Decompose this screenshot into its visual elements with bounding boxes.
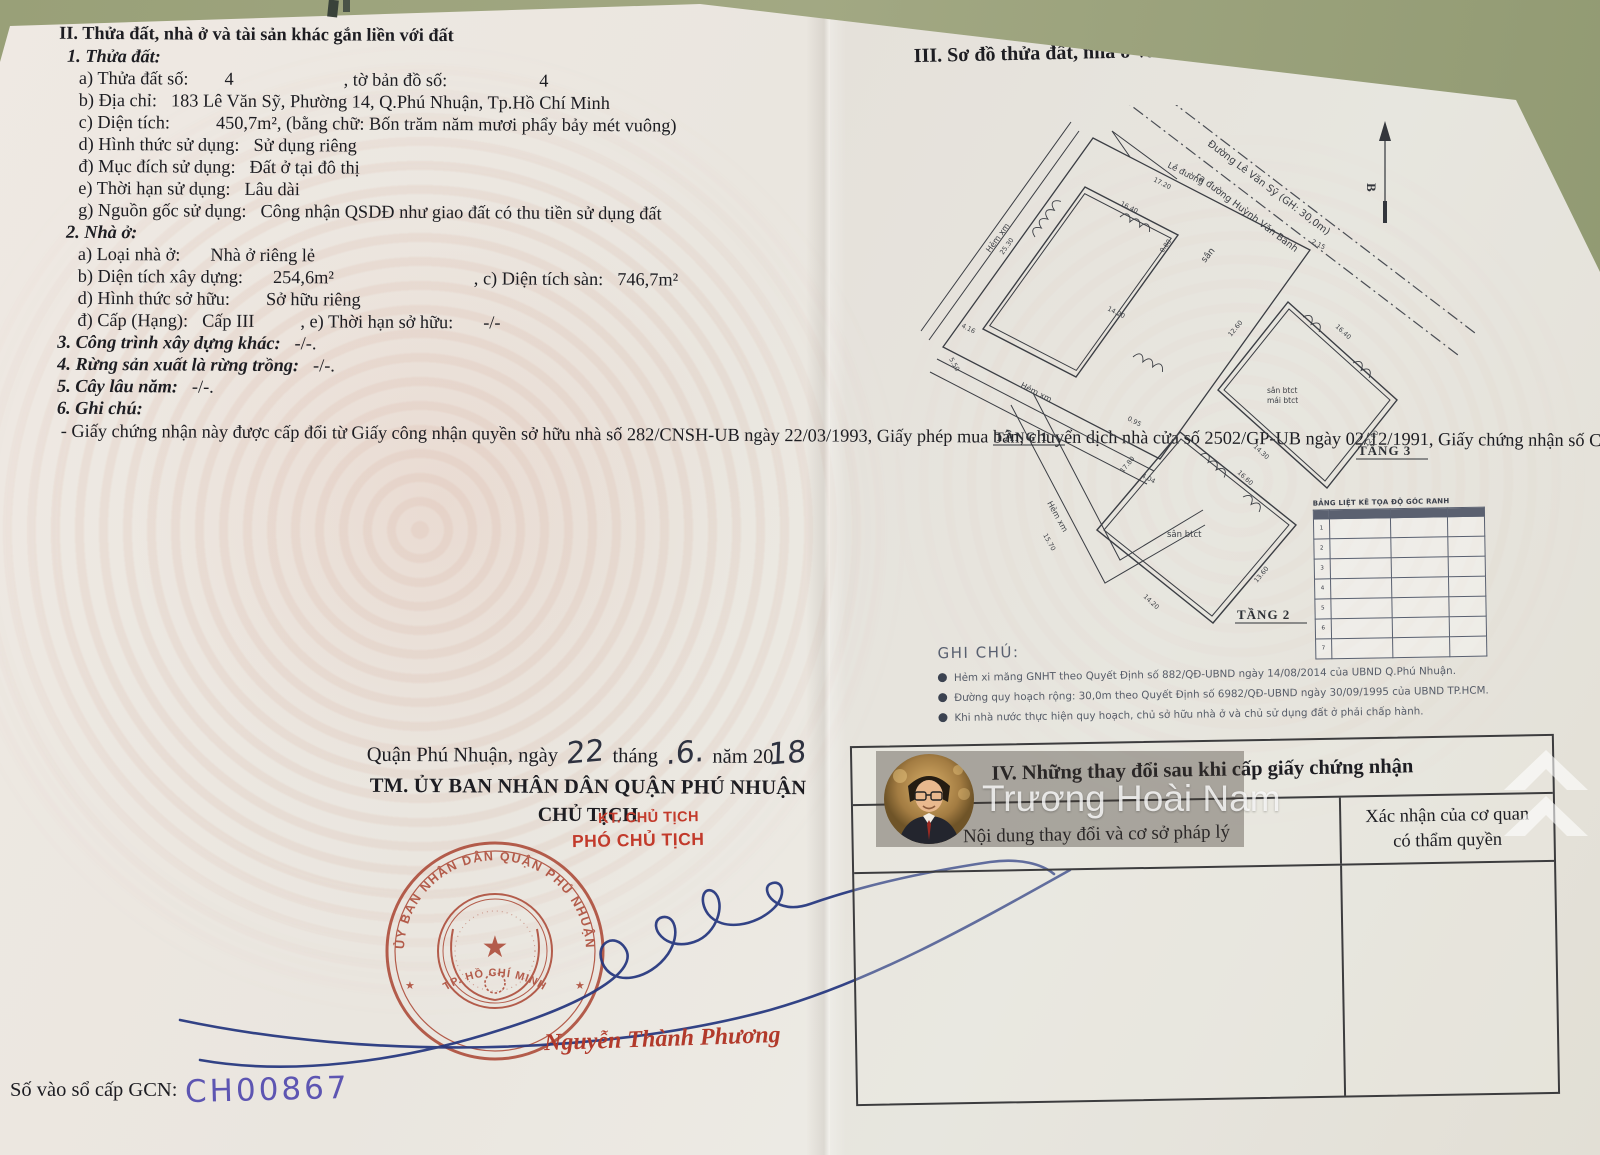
field-perennial: 5. Cây lâu năm:-/-. — [57, 375, 799, 402]
clip-mark-2 — [343, 0, 350, 12]
agent-watermark-band: Trương Hoài Nam — [876, 751, 1244, 847]
north-arrow-icon: B — [1364, 121, 1391, 223]
area-value: 450,7m², (bằng chữ: Bốn trăm năm mươi ph… — [216, 113, 677, 136]
field-use-origin: g) Nguồn gốc sử dụng:Công nhận QSDĐ như … — [78, 199, 800, 225]
certificate-page: II. Thửa đất, nhà ở và tài sản khác gắn … — [0, 0, 1600, 1155]
svg-text:16.40: 16.40 — [1334, 323, 1353, 342]
page-fold — [806, 0, 846, 1155]
date-line: Quận Phú Nhuận, ngày 22 tháng .6. năm 20… — [366, 739, 810, 773]
svg-text:0.95: 0.95 — [1126, 415, 1143, 429]
svg-text:17.80: 17.80 — [1118, 455, 1136, 474]
signing-block: Quận Phú Nhuận, ngày 22 tháng .6. năm 20… — [366, 739, 810, 829]
clip-mark — [327, 0, 339, 17]
svg-text:★: ★ — [575, 980, 585, 992]
seal-star-icon: ★ — [482, 931, 509, 964]
avatar — [884, 754, 974, 844]
address-value: 183 Lê Văn Sỹ, Phường 14, Q.Phú Nhuận, T… — [171, 90, 610, 113]
handwritten-month: .6. — [666, 752, 704, 755]
svg-text:4.04: 4.04 — [1140, 472, 1157, 486]
svg-text:14.30: 14.30 — [1252, 443, 1271, 462]
section-iv-body-left — [854, 866, 1346, 1104]
svg-text:14.20: 14.20 — [1106, 305, 1126, 321]
committee-line: TM. ỦY BAN NHÂN DÂN QUẬN PHÚ NHUẬN — [366, 771, 810, 803]
bullet-icon — [938, 713, 947, 722]
map-sheet-value: 4 — [539, 71, 548, 91]
road-huynh-van-banh-label: ra đường Huỳnh Văn Bánh — [1193, 171, 1300, 255]
svg-text:★: ★ — [405, 980, 415, 992]
svg-text:13.60: 13.60 — [1252, 565, 1270, 584]
yard-label: sân — [1200, 246, 1218, 265]
svg-text:14.20: 14.20 — [1142, 593, 1161, 612]
heading-ghi-chu: 6. Ghi chú: — [57, 397, 799, 424]
alley-label-3: Hẻm xm — [1045, 499, 1070, 534]
floor-2-label: TẦNG 2 — [1237, 607, 1290, 622]
svg-text:12.60: 12.60 — [1226, 319, 1244, 338]
north-label: B — [1364, 183, 1379, 192]
coordinate-table: BẢNG LIỆT KÊ TỌA ĐỘ GÓC RANH 1 2 3 4 5 6… — [1313, 496, 1496, 659]
handwritten-day: 22 — [566, 751, 604, 754]
floor-1-label: TẦNG 1 — [995, 429, 1048, 444]
section-ii: II. Thửa đất, nhà ở và tài sản khác gắn … — [57, 22, 802, 447]
roof-btct-label: mái btct — [1267, 396, 1298, 405]
section-iv-body — [854, 862, 1558, 1104]
chairman-title: CHỦ TỊCH — [366, 801, 810, 829]
registry-number-value: CH00867 — [185, 1070, 350, 1110]
section-ii-title: II. Thửa đất, nhà ở và tài sản khác gắn … — [59, 22, 801, 49]
bullet-icon — [938, 693, 947, 702]
diagram-notes: GHI CHÚ: Hẻm xi măng GNHT theo Quyết Địn… — [937, 636, 1538, 728]
agent-watermark-name: Trương Hoài Nam — [982, 751, 1281, 847]
svg-text:15.70: 15.70 — [1041, 532, 1057, 552]
agent-photo-icon — [884, 754, 974, 844]
yard-btct-label-2: sân btct — [1267, 386, 1297, 395]
svg-text:4.16: 4.16 — [960, 322, 977, 336]
note-paragraph: - Giấy chứng nhận này được cấp đổi từ Gi… — [61, 420, 767, 446]
svg-text:TP. HỒ CHÍ MINH: TP. HỒ CHÍ MINH — [441, 967, 548, 993]
registry-number-line: Số vào sổ cấp GCN:CH00867 — [10, 1072, 350, 1108]
svg-text:2.15: 2.15 — [1310, 238, 1327, 252]
handwritten-year: 18 — [768, 752, 806, 755]
parcel-number-value: 4 — [224, 69, 233, 89]
yard-btct-label: sân btct — [1167, 530, 1202, 540]
brand-chevron-logo-icon — [1498, 744, 1594, 850]
bullet-icon — [938, 673, 947, 682]
photo-background: II. Thửa đất, nhà ở và tài sản khác gắn … — [0, 0, 1600, 1155]
kt-chu-tich-stamp: KT. CHỦ TỊCH — [598, 809, 699, 827]
